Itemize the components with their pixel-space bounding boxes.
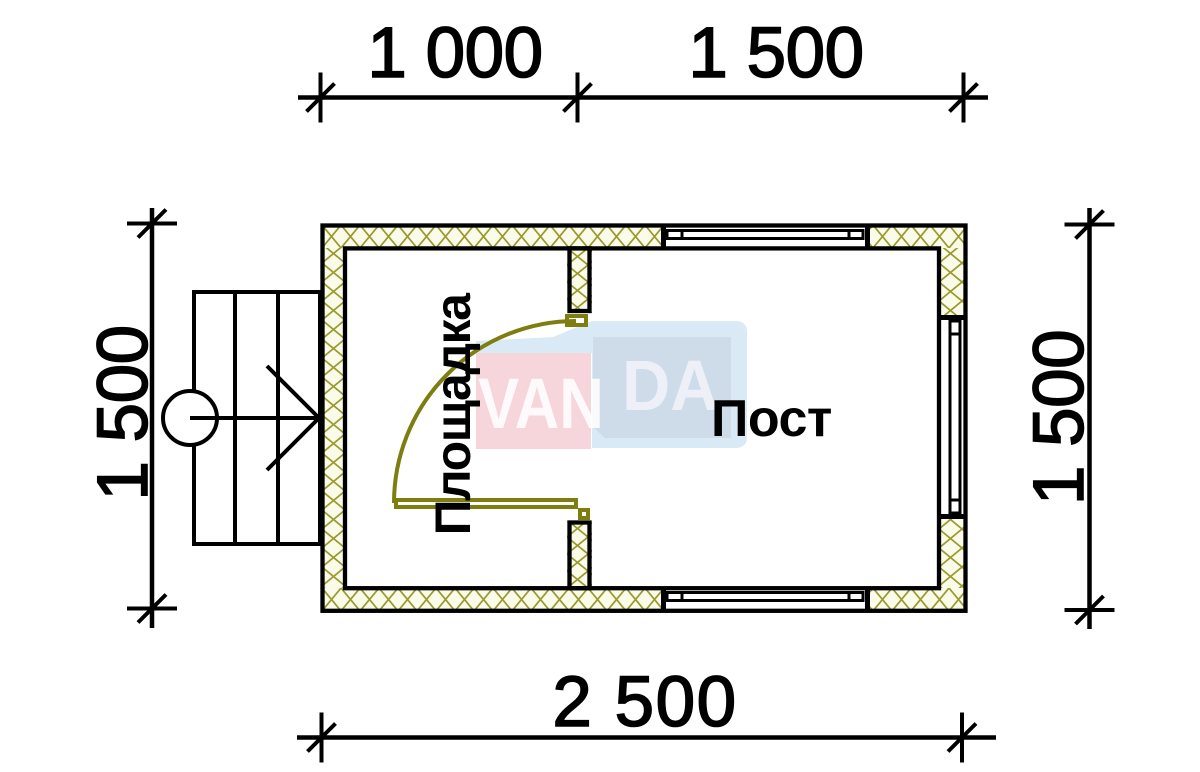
svg-text:Пост: Пост [711,390,832,448]
svg-text:1 500: 1 500 [84,325,163,500]
svg-text:1 500: 1 500 [688,14,863,93]
svg-text:2 500: 2 500 [552,663,737,742]
svg-text:Площадка: Площадка [425,292,481,535]
svg-text:VAN: VAN [478,365,604,444]
svg-text:1 000: 1 000 [367,14,542,93]
svg-text:DA: DA [622,346,718,425]
svg-text:1 500: 1 500 [1020,330,1099,505]
